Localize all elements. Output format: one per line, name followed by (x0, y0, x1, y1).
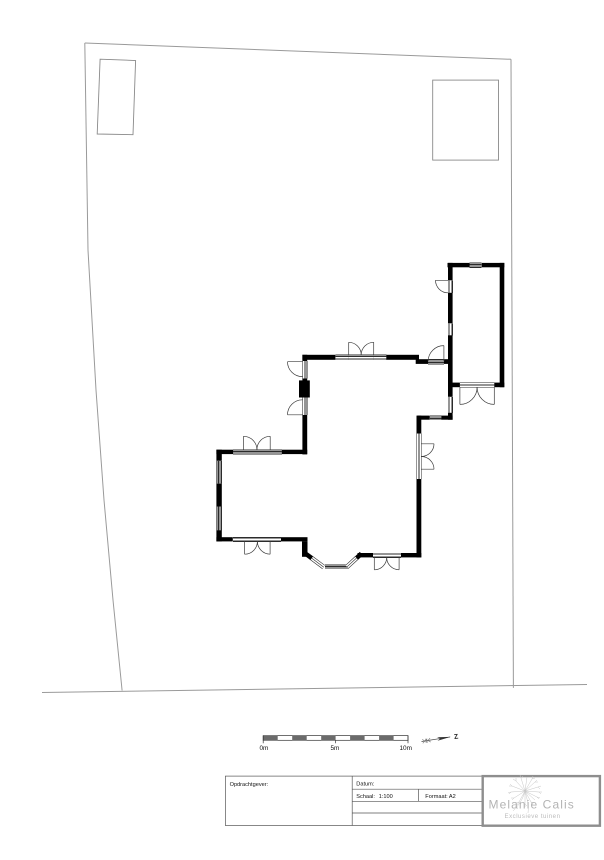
svg-text:Melanie Calis: Melanie Calis (489, 798, 575, 812)
svg-text:Formaat: A2: Formaat: A2 (425, 794, 455, 800)
svg-text:0m: 0m (260, 745, 269, 752)
svg-text:Exclusieve tuinen: Exclusieve tuinen (505, 813, 561, 820)
svg-text:5m: 5m (331, 745, 340, 752)
svg-text:10m: 10m (400, 745, 412, 752)
svg-text:Opdrachtgever:: Opdrachtgever: (230, 782, 269, 788)
svg-text:Schaal:: Schaal: (356, 794, 375, 800)
svg-text:Datum:: Datum: (356, 781, 374, 787)
svg-text:1:100: 1:100 (379, 794, 393, 800)
